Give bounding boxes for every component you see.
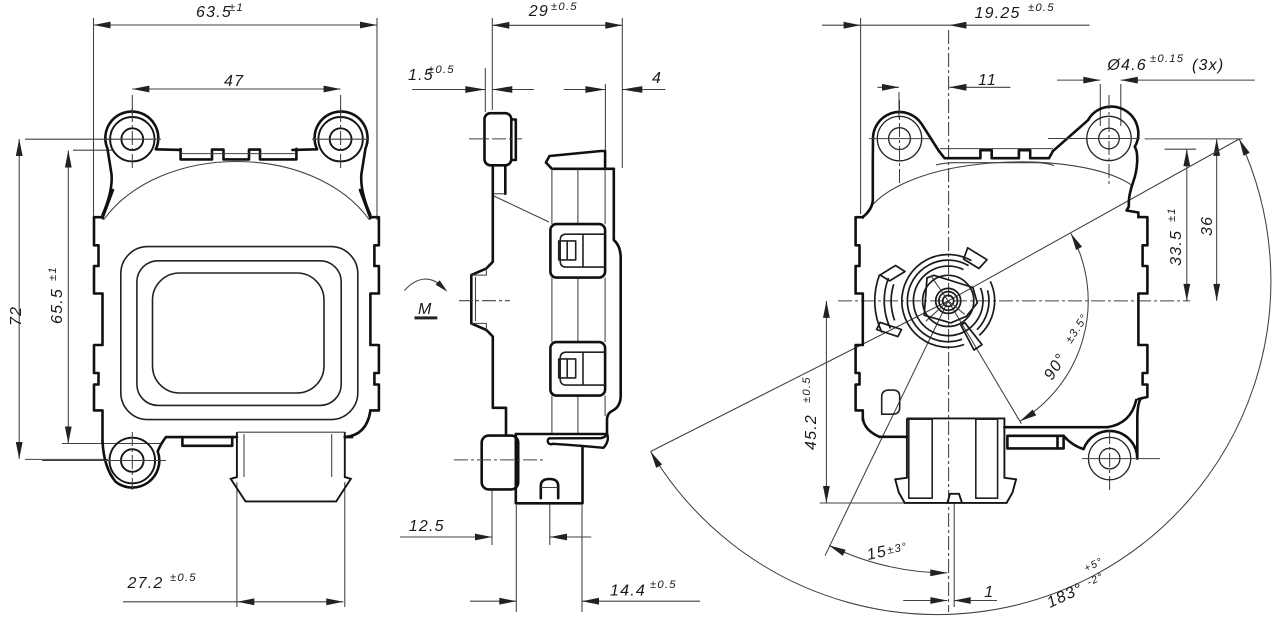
svg-text:72: 72 <box>8 306 25 326</box>
svg-text:M: M <box>418 301 433 318</box>
svg-text:65.5: 65.5 <box>49 288 66 324</box>
svg-text:±0.5: ±0.5 <box>170 572 197 584</box>
svg-text:47: 47 <box>224 73 244 90</box>
svg-text:4: 4 <box>652 70 662 87</box>
svg-text:(3x): (3x) <box>1192 57 1224 74</box>
svg-text:63.5: 63.5 <box>196 4 232 21</box>
svg-text:±0.5: ±0.5 <box>801 376 813 403</box>
svg-text:29: 29 <box>528 3 549 20</box>
svg-text:14.4: 14.4 <box>610 583 646 600</box>
svg-text:27.2: 27.2 <box>127 575 164 592</box>
svg-text:45.2: 45.2 <box>803 414 820 450</box>
svg-text:33.5: 33.5 <box>1168 230 1185 266</box>
svg-text:±0.15: ±0.15 <box>1150 53 1184 65</box>
svg-text:12.5: 12.5 <box>409 518 445 535</box>
svg-text:36: 36 <box>1199 216 1216 236</box>
svg-text:±0.5: ±0.5 <box>551 1 578 13</box>
svg-text:±0.5: ±0.5 <box>428 64 455 76</box>
svg-text:19.25: 19.25 <box>975 5 1021 22</box>
svg-text:±1: ±1 <box>47 266 59 281</box>
svg-text:±0.5: ±0.5 <box>650 579 677 591</box>
svg-text:±0.5: ±0.5 <box>1028 2 1055 14</box>
svg-text:1: 1 <box>984 584 994 601</box>
svg-text:±1: ±1 <box>229 2 244 14</box>
svg-text:Ø4.6: Ø4.6 <box>1106 57 1147 74</box>
svg-text:±1: ±1 <box>1166 207 1178 222</box>
svg-text:11: 11 <box>978 72 997 89</box>
